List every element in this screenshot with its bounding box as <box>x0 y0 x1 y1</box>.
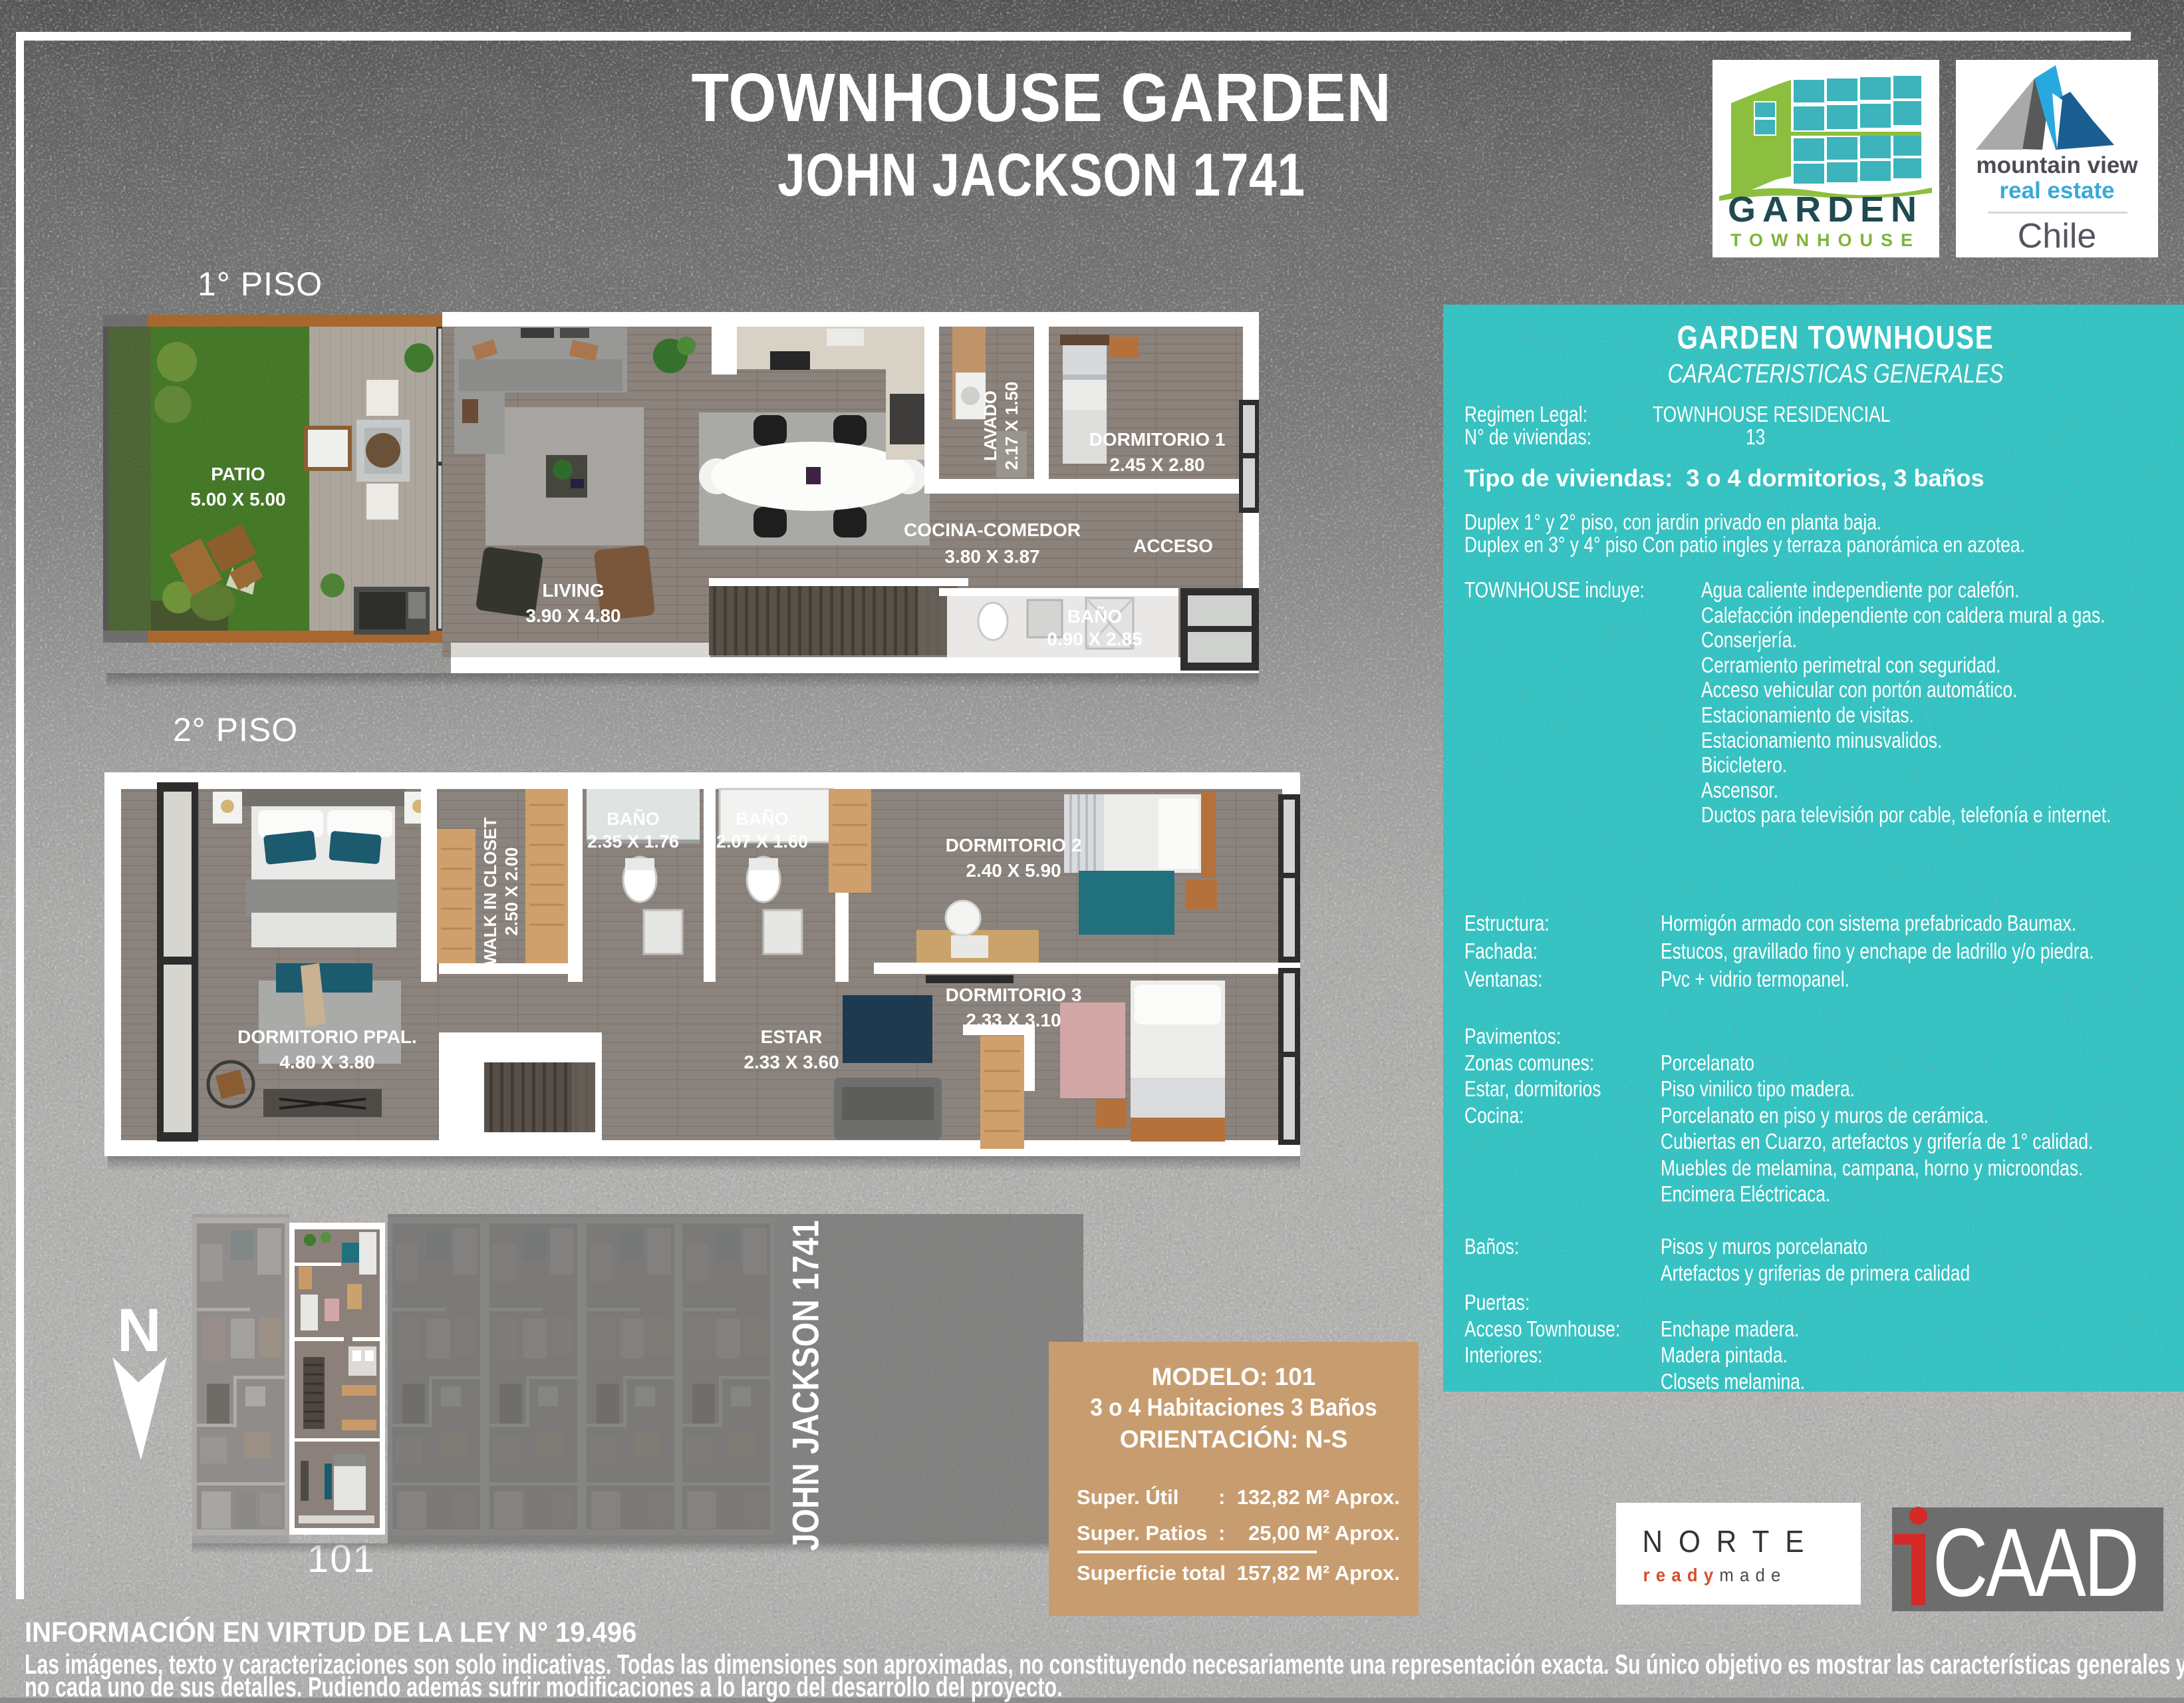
svg-text:2.33 X 3.10: 2.33 X 3.10 <box>966 1010 1061 1030</box>
svg-text:DORMITORIO PPAL.: DORMITORIO PPAL. <box>237 1026 417 1047</box>
svg-text:4.80 X 3.80: 4.80 X 3.80 <box>279 1052 374 1072</box>
svg-text:2.50 X 2.00: 2.50 X 2.00 <box>501 848 521 936</box>
svg-text:GARDEN: GARDEN <box>1728 190 1923 230</box>
svg-text:ESTAR: ESTAR <box>761 1026 823 1047</box>
svg-text:0.90 X 2.85: 0.90 X 2.85 <box>1047 629 1142 649</box>
svg-text:COCINA-COMEDOR: COCINA-COMEDOR <box>904 520 1081 540</box>
svg-text:2.17 X 1.50: 2.17 X 1.50 <box>1002 382 1022 470</box>
svg-text:TOWNHOUSE: TOWNHOUSE <box>1730 230 1921 250</box>
svg-text:DORMITORIO 3: DORMITORIO 3 <box>946 985 1082 1005</box>
svg-text:2.07 X 1.60: 2.07 X 1.60 <box>716 832 808 851</box>
svg-text:PATIO: PATIO <box>211 464 265 484</box>
svg-text:DORMITORIO 2: DORMITORIO 2 <box>946 835 1082 855</box>
svg-text:2.45 X 2.80: 2.45 X 2.80 <box>1109 454 1204 475</box>
svg-text:DORMITORIO 1: DORMITORIO 1 <box>1089 429 1226 450</box>
svg-text:BAÑO: BAÑO <box>607 808 660 829</box>
svg-text:LAVADO: LAVADO <box>980 390 1000 461</box>
svg-text:BAÑO: BAÑO <box>736 808 789 829</box>
svg-text:LIVING: LIVING <box>542 580 604 601</box>
svg-text:2.35 X 1.76: 2.35 X 1.76 <box>587 832 679 851</box>
svg-text:2.40 X 5.90: 2.40 X 5.90 <box>966 860 1061 881</box>
svg-text:WALK IN CLOSET: WALK IN CLOSET <box>480 818 500 966</box>
svg-text:ACCESO: ACCESO <box>1133 536 1213 556</box>
svg-text:3.90 X 4.80: 3.90 X 4.80 <box>525 605 620 626</box>
svg-text:3.80 X 3.87: 3.80 X 3.87 <box>944 546 1039 567</box>
svg-text:2.33 X 3.60: 2.33 X 3.60 <box>744 1052 839 1072</box>
svg-text:Chile: Chile <box>2018 217 2097 255</box>
svg-text:BAÑO: BAÑO <box>1067 606 1122 627</box>
svg-text:real estate: real estate <box>1999 178 2114 204</box>
svg-text:mountain view: mountain view <box>1976 152 2138 178</box>
svg-text:5.00 X 5.00: 5.00 X 5.00 <box>190 489 285 510</box>
